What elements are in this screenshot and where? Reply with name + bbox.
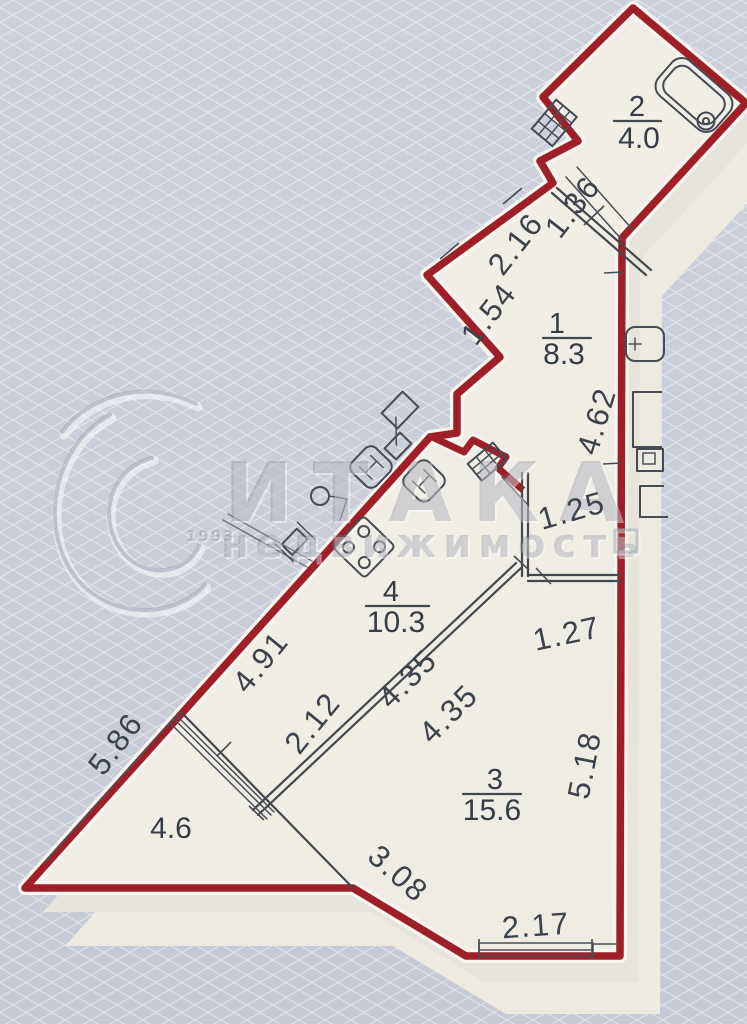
room-area: 4.0	[618, 122, 660, 155]
room-area: 8.3	[543, 338, 585, 371]
room-area: 15.6	[463, 794, 521, 827]
apartment-floor-plan-3d: 1993 1993 ИТАКА ИТАКА недвижимость недви…	[0, 0, 747, 1024]
room-area: 10.3	[367, 606, 425, 639]
room-number: 3	[487, 764, 503, 796]
room-number: 1	[549, 308, 565, 340]
watermark-subtitle: недвижимость	[221, 521, 646, 567]
dimension-label: 2.17	[501, 906, 572, 946]
balcony-area-label: 4.6	[150, 812, 192, 845]
floor-plan-image: 1993 1993 ИТАКА ИТАКА недвижимость недви…	[0, 0, 747, 1024]
room-number: 2	[629, 91, 645, 123]
room-number: 4	[383, 576, 399, 608]
